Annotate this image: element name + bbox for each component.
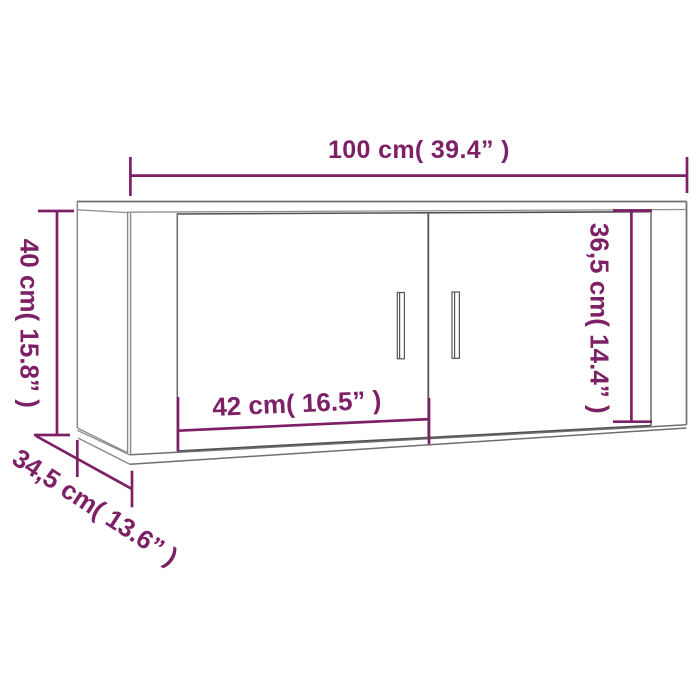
svg-text:36,5 cm( 14.4” ): 36,5 cm( 14.4” ) bbox=[585, 223, 615, 414]
svg-text:40 cm( 15.8” ): 40 cm( 15.8” ) bbox=[15, 239, 45, 408]
svg-text:100 cm( 39.4” ): 100 cm( 39.4” ) bbox=[328, 136, 510, 164]
